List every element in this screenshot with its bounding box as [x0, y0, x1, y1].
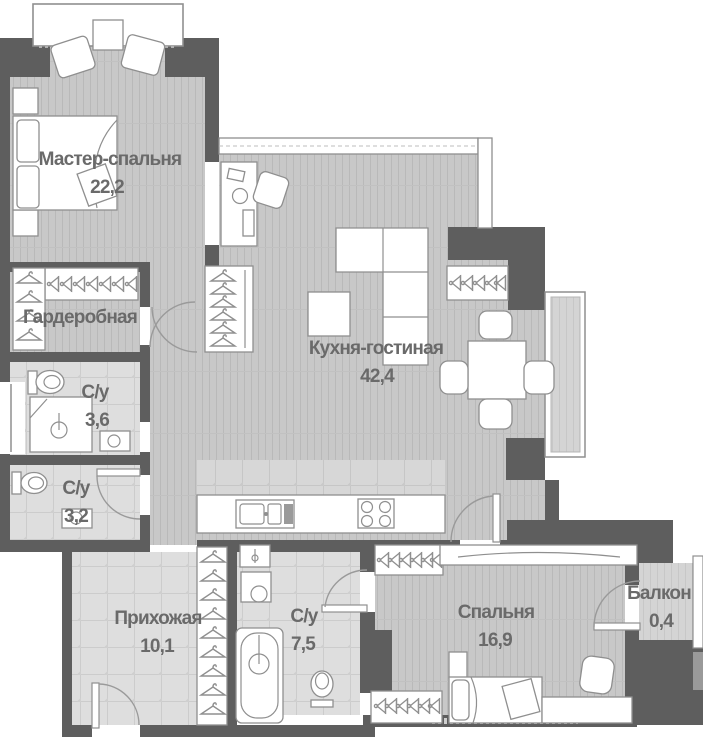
label-bathroom-3-area: 7,5: [291, 634, 316, 655]
balcony-door: [594, 623, 640, 630]
desk-item: [243, 210, 254, 236]
toilet-tank: [12, 472, 21, 494]
bathroom-3-door: [322, 605, 367, 612]
label-balcony-area: 0,4: [649, 611, 674, 632]
label-wardrobe: Гардеробная: [23, 307, 137, 328]
pillow-symbol: [17, 120, 39, 162]
nightstand-symbol: [13, 88, 38, 114]
pillow-symbol: [452, 680, 469, 720]
toilet-tank: [311, 700, 333, 707]
floor-kitchen-zone: [197, 460, 445, 495]
bathroom-2-door: [97, 469, 140, 476]
pillow-symbol: [17, 166, 39, 208]
entry-door: [92, 683, 99, 728]
floor-hallway: [72, 552, 197, 725]
left-wall-niche: [0, 382, 25, 454]
label-kitchen-living: Кухня-гостиная: [309, 338, 443, 359]
shower-symbol: [30, 397, 92, 452]
counter-symbol: [197, 495, 445, 533]
bedroom-door: [493, 494, 500, 542]
console-symbol: [542, 697, 632, 723]
floor-plan-svg: Мастер-спальня 22,2 Гардеробная С/у 3,6 …: [0, 0, 703, 737]
sink-symbol: [100, 431, 130, 451]
kitchen-counter: [197, 495, 445, 533]
label-master-bedroom-area: 22,2: [90, 177, 124, 198]
label-kitchen-living-area: 42,4: [360, 366, 395, 387]
label-master-bedroom: Мастер-спальня: [39, 149, 182, 170]
partition-closet: [205, 266, 253, 352]
dining-chair-symbol: [479, 311, 512, 339]
label-hallway: Прихожая: [114, 608, 201, 629]
wardrobe-rail: [45, 268, 138, 300]
label-bedroom-area: 16,9: [478, 630, 512, 651]
balcony-ledge-unit: [693, 652, 703, 690]
kitchen-corner-window: [478, 138, 492, 228]
chair-symbol: [579, 655, 616, 695]
side-table-symbol: [93, 20, 123, 50]
nightstand-symbol: [13, 210, 38, 236]
dining-chair-symbol: [479, 399, 512, 429]
nightstand-symbol: [449, 652, 467, 678]
dining-nook-rail: [447, 266, 508, 300]
bedroom-wardrobe-bottom: [371, 691, 442, 723]
bedroom-wardrobe-top: [375, 545, 443, 575]
toilet-symbol: [311, 671, 333, 697]
label-bathroom-2: С/у: [62, 478, 90, 499]
balcony-glazing: [693, 556, 703, 648]
window-sill: [440, 545, 637, 565]
coffee-table-symbol: [308, 292, 350, 336]
desk-niche: [205, 162, 219, 245]
hall-closet: [197, 547, 227, 725]
label-bedroom: Спальня: [458, 602, 534, 623]
label-hallway-area: 10,1: [140, 636, 175, 657]
label-bathroom-2-area: 3,2: [64, 506, 88, 527]
floor-plan: Мастер-спальня 22,2 Гардеробная С/у 3,6 …: [0, 0, 703, 737]
label-bathroom-1-area: 3,6: [85, 410, 109, 431]
floor-corridor-upper: [150, 262, 205, 352]
dining-table-symbol: [468, 341, 526, 399]
label-bathroom-1: С/у: [81, 382, 109, 403]
label-balcony: Балкон: [627, 583, 691, 604]
dining-chair-symbol: [524, 361, 554, 394]
dining-chair-symbol: [440, 361, 468, 394]
label-bathroom-3: С/у: [290, 606, 318, 627]
dining-bay-floor: [551, 297, 580, 452]
